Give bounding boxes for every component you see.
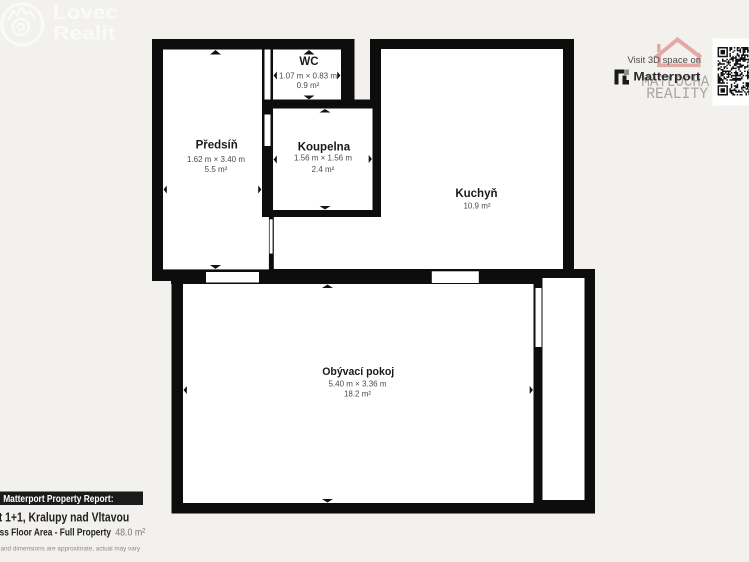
svg-text:2.4 m²: 2.4 m² bbox=[312, 165, 335, 174]
svg-text:Visit 3D space on: Visit 3D space on bbox=[628, 55, 702, 65]
svg-text:Kuchyň: Kuchyň bbox=[455, 188, 497, 200]
svg-text:Matterport Property Report:: Matterport Property Report: bbox=[3, 494, 113, 505]
svg-text:1.07 m × 0.83 m: 1.07 m × 0.83 m bbox=[279, 71, 337, 80]
svg-text:Koupelna: Koupelna bbox=[298, 142, 351, 154]
svg-text:10.9 m²: 10.9 m² bbox=[463, 202, 490, 211]
svg-text:1.62 m × 3.40 m: 1.62 m × 3.40 m bbox=[187, 155, 245, 164]
svg-text:and dimensions are approximate: and dimensions are approximate, actual m… bbox=[1, 545, 141, 552]
svg-text:Realit: Realit bbox=[53, 24, 116, 45]
svg-text:Obývací pokoj: Obývací pokoj bbox=[322, 366, 394, 378]
svg-text:Gross Floor Area - Full Proper: Gross Floor Area - Full Property bbox=[0, 527, 111, 538]
svg-text:5.5 m²: 5.5 m² bbox=[205, 165, 228, 174]
svg-text:0.9 m²: 0.9 m² bbox=[297, 81, 320, 90]
svg-text:Matterport: Matterport bbox=[633, 70, 700, 84]
svg-text:Byt 1+1, Kralupy nad Vltavou: Byt 1+1, Kralupy nad Vltavou bbox=[0, 511, 129, 525]
svg-text:1.56 m × 1.56 m: 1.56 m × 1.56 m bbox=[294, 153, 352, 162]
svg-text:Lovec: Lovec bbox=[53, 3, 118, 24]
svg-text:Předsíň: Předsíň bbox=[196, 140, 238, 152]
svg-text:WC: WC bbox=[299, 56, 318, 68]
svg-text:5.40 m × 3.36 m: 5.40 m × 3.36 m bbox=[328, 380, 386, 389]
svg-text:REALITY: REALITY bbox=[646, 85, 708, 103]
svg-text:48.0 m²: 48.0 m² bbox=[115, 527, 145, 538]
svg-text:18.2 m²: 18.2 m² bbox=[344, 390, 371, 399]
